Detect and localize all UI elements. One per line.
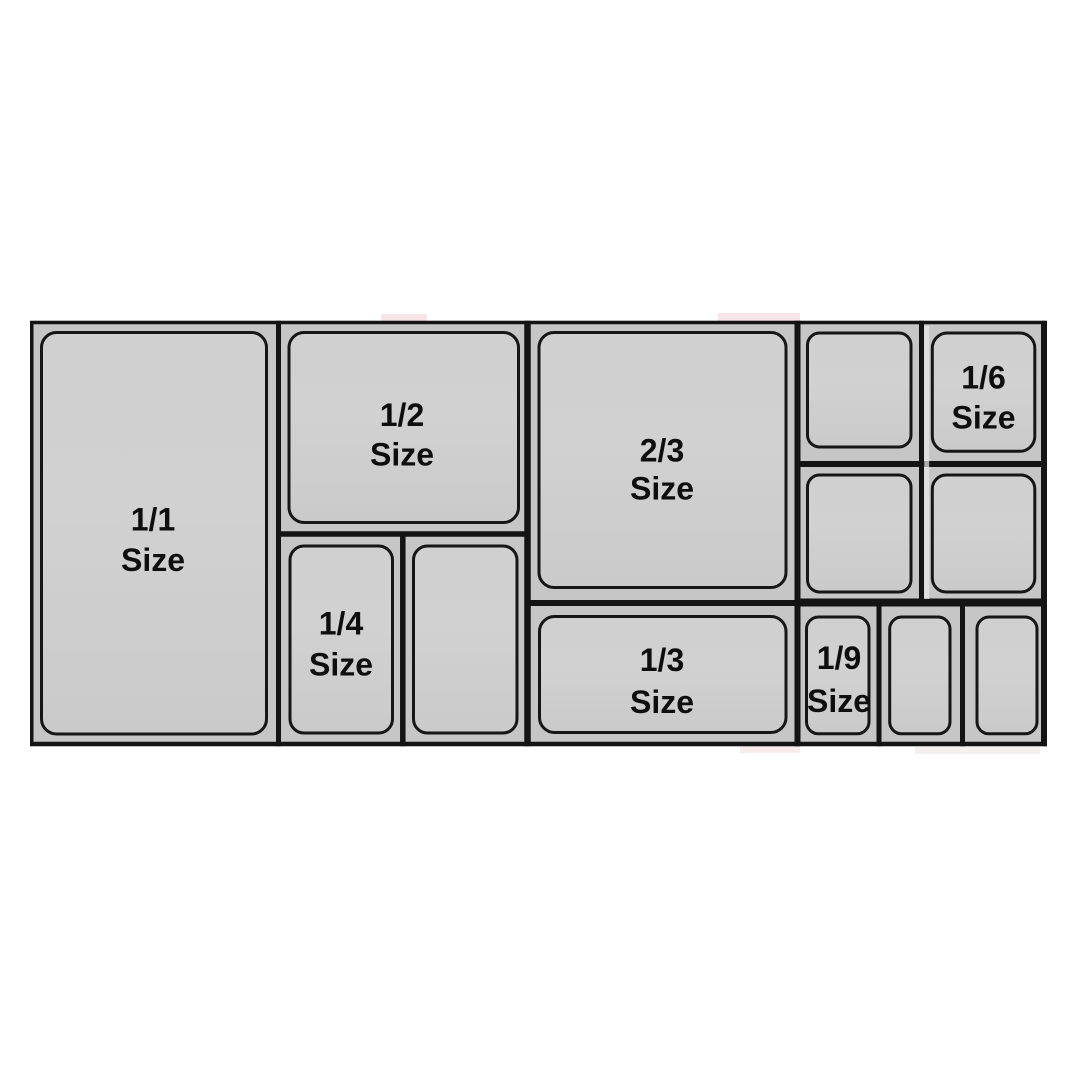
- svg-text:Size: Size: [807, 683, 871, 719]
- svg-text:1/2: 1/2: [380, 397, 424, 433]
- svg-text:Size: Size: [951, 400, 1015, 436]
- svg-text:Size: Size: [630, 684, 694, 720]
- svg-text:Size: Size: [370, 437, 434, 473]
- svg-text:1/1: 1/1: [131, 502, 175, 538]
- svg-text:1/6: 1/6: [961, 360, 1005, 396]
- svg-text:Size: Size: [121, 542, 185, 578]
- svg-text:1/4: 1/4: [319, 606, 364, 642]
- svg-text:1/3: 1/3: [640, 642, 684, 678]
- svg-text:Size: Size: [309, 647, 373, 683]
- svg-text:1/9: 1/9: [817, 640, 861, 676]
- svg-text:Size: Size: [630, 471, 694, 507]
- svg-text:2/3: 2/3: [640, 432, 684, 468]
